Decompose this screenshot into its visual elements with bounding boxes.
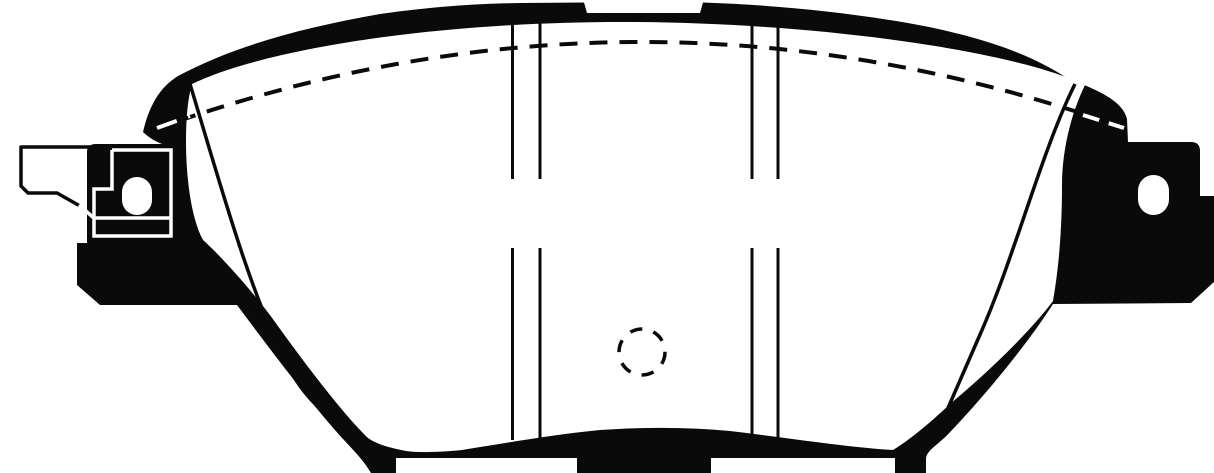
brake-pad-drawing: [0, 0, 1214, 473]
left-ear-hole: [122, 177, 152, 215]
clip-outline: [21, 147, 92, 206]
figure-canvas: [0, 0, 1214, 473]
right-ear-hole: [1138, 175, 1169, 215]
